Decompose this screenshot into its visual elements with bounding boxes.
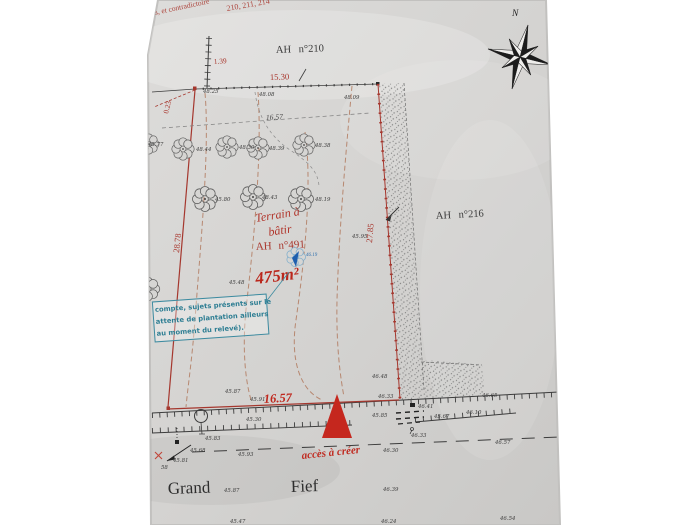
spot-elevation: 45.77 [147,142,164,148]
spot-elevation: 45.81 [172,458,188,464]
plan-drawing: els, et contradictoire 210, 211, 214 [0,0,700,525]
spot-elevation: 45.48 [228,280,245,286]
spot-elevation: 46.41 [417,404,433,410]
spot-elevation: 46.33 [410,433,427,439]
spot-elevation: 58 [161,465,168,471]
spot-elevation: 45.85 [371,413,388,419]
tree-symbol [216,136,238,158]
spot-elevation: 45.30 [245,417,262,423]
north-label: N [511,9,519,19]
tree-symbol [293,134,315,156]
tree-symbol [192,186,217,211]
blue-spot-elevation: 46.19 [306,253,318,258]
spot-elevation: 48.08 [258,92,275,98]
spot-elevation: 48.38 [314,143,331,149]
dim-left-length: 28.78 [171,233,183,253]
spot-elevation: 45.83 [204,436,221,442]
spot-elevation: 46.39 [382,487,399,493]
street-name-fief: Fief [290,476,318,496]
spot-elevation: 46.33 [377,394,394,400]
spot-elevation: 48.19 [314,197,331,203]
spot-elevation: 48.30 [238,145,255,151]
dim-top-offset: 1.39 [214,56,228,66]
spot-elevation: 46.65 [481,393,498,399]
spot-elevation: 45.91 [249,397,265,403]
dim-frontage: 16.57 [263,391,293,406]
spot-elevation: 48.43 [261,195,278,201]
spot-elevation: 45.87 [224,389,241,395]
note-box: compte, sujets présents sur le attente d… [152,294,273,342]
survey-plan-photo: els, et contradictoire 210, 211, 214 [0,0,700,525]
spot-elevation: 45.47 [229,519,246,525]
spot-elevation: 46.57 [494,440,511,446]
tree-symbol [172,138,194,160]
spot-elevation: 45.93 [237,452,254,458]
tree-symbol [136,277,160,301]
spot-elevation: 46.48 [371,374,388,380]
spot-elevation: 48.44 [195,147,212,153]
spot-elevation: 46.54 [499,516,516,522]
spot-elevation: 45.68 [189,448,206,454]
spot-elevation: 45.95 [351,234,368,240]
spot-elevation: 48.25 [202,89,219,95]
spot-elevation: 48.09 [343,95,360,101]
spot-elevation: 46.30 [382,448,399,454]
spot-elevation: 46.10 [465,410,482,416]
spot-elevation: 45.87 [223,488,240,494]
street-name-grand: Grand [167,478,211,498]
dim-inner-width: 16.57 [266,112,285,122]
parcel-label-ah210: AH n°210 [276,43,324,56]
spot-elevation: 48.39 [268,146,285,152]
spot-elevation: 45.67 [433,414,450,420]
dim-top-width: 15.30 [270,71,290,82]
spot-elevation: 46.24 [380,519,397,525]
spot-elevation: 45.80 [214,197,231,203]
